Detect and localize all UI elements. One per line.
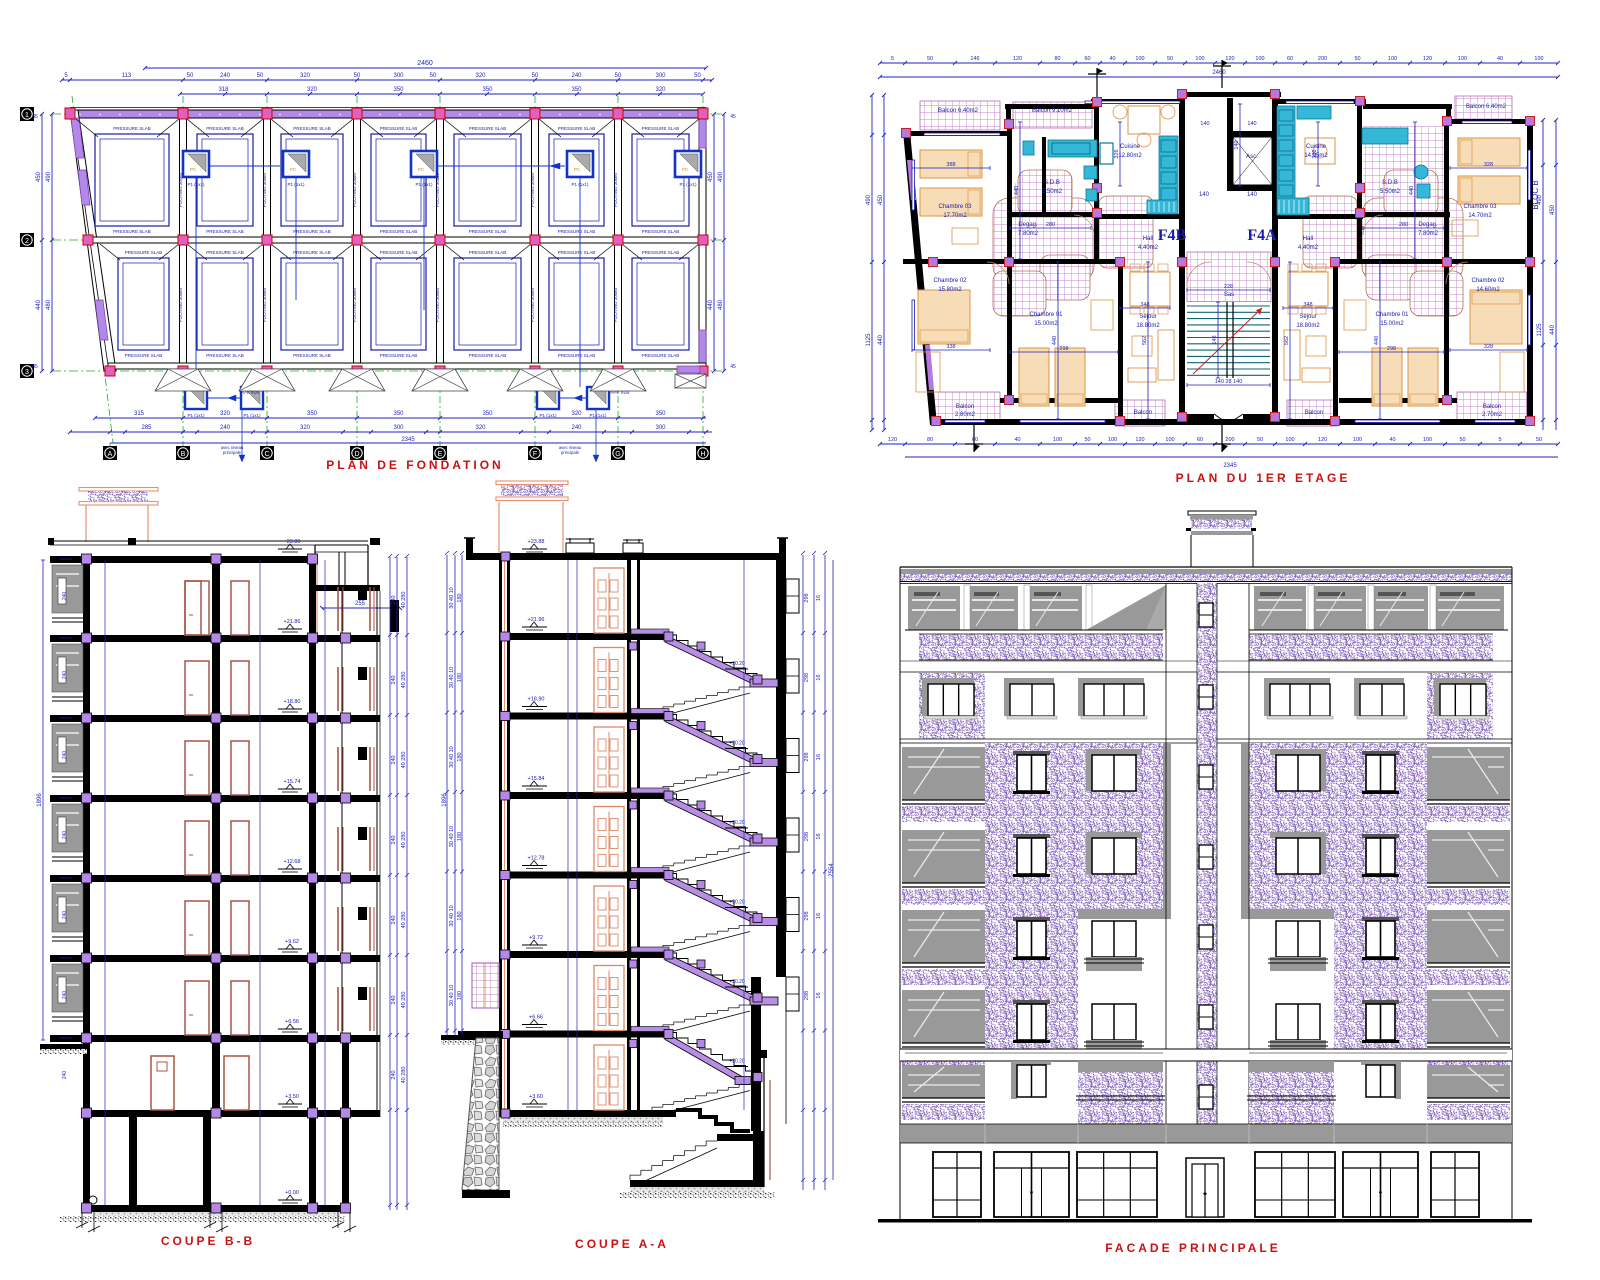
svg-text:+: + (339, 113, 342, 119)
svg-text:FACADE PRINCIPALE: FACADE PRINCIPALE (1105, 1241, 1280, 1255)
svg-text:240: 240 (62, 831, 68, 840)
svg-text:50: 50 (1354, 56, 1360, 62)
svg-text:Hall: Hall (1143, 236, 1153, 242)
svg-text:Asc.: Asc. (1246, 154, 1258, 160)
svg-text:100: 100 (1108, 437, 1117, 443)
svg-text:7.80m2: 7.80m2 (1018, 231, 1039, 237)
svg-text:450: 450 (878, 194, 884, 205)
svg-text:15.00m2: 15.00m2 (1034, 321, 1058, 327)
svg-text:440: 440 (36, 299, 42, 310)
svg-text:+: + (419, 113, 422, 119)
svg-text:440: 440 (1409, 186, 1415, 195)
svg-text:300: 300 (655, 425, 666, 431)
svg-text:338: 338 (946, 344, 955, 350)
svg-text:FOOTING 30x60: FOOTING 30x60 (613, 288, 618, 323)
svg-text:Balcon: Balcon (1305, 410, 1323, 416)
svg-text:+: + (239, 113, 242, 119)
svg-text:40 280: 40 280 (401, 912, 407, 929)
svg-text:240: 240 (391, 755, 397, 764)
svg-text:PRESSURE SLAB: PRESSURE SLAB (642, 353, 680, 358)
svg-text:16: 16 (816, 913, 822, 919)
svg-text:+: + (159, 113, 162, 119)
svg-text:140: 140 (1199, 192, 1210, 198)
svg-text:120: 120 (1135, 437, 1144, 443)
svg-text:5.50m2: 5.50m2 (1042, 189, 1063, 195)
svg-text:50: 50 (1084, 437, 1090, 443)
svg-text:50: 50 (354, 73, 361, 79)
svg-text:F4B: F4B (1158, 227, 1187, 244)
svg-text:40 280: 40 280 (401, 992, 407, 1009)
svg-text:30 40 10: 30 40 10 (449, 746, 455, 767)
svg-text:450: 450 (36, 171, 42, 182)
svg-text:+: + (279, 113, 282, 119)
svg-text:+: + (559, 113, 562, 119)
svg-text:2345: 2345 (1223, 463, 1237, 469)
svg-text:298: 298 (804, 593, 810, 602)
svg-text:COUPE A-A: COUPE A-A (575, 1237, 669, 1251)
svg-text:180: 180 (457, 673, 463, 682)
svg-text:2: 2 (25, 238, 29, 245)
svg-text:3: 3 (25, 369, 29, 376)
svg-text:300: 300 (393, 425, 404, 431)
svg-text:320: 320 (220, 411, 231, 417)
svg-text:Degag.: Degag. (1418, 222, 1438, 228)
svg-text:Cuisine: Cuisine (1120, 144, 1141, 150)
svg-text:285: 285 (141, 425, 152, 431)
svg-text:5.50m2: 5.50m2 (1380, 189, 1401, 195)
svg-text:50: 50 (1536, 437, 1542, 443)
svg-text:350: 350 (482, 411, 493, 417)
svg-text:+0.00: +0.00 (285, 1190, 299, 1196)
svg-text:50: 50 (1167, 56, 1173, 62)
svg-text:240: 240 (391, 995, 397, 1004)
svg-text:326: 326 (1312, 149, 1318, 158)
svg-text:PLAN DE FONDATION: PLAN DE FONDATION (326, 458, 503, 472)
svg-text:PLAN DU 1ER ETAGE: PLAN DU 1ER ETAGE (1176, 471, 1351, 485)
svg-text:+: + (659, 113, 662, 119)
svg-text:45: 45 (32, 364, 38, 370)
svg-text:146: 146 (970, 56, 979, 62)
svg-text:B: B (181, 451, 186, 458)
svg-text:40: 40 (1109, 56, 1115, 62)
svg-text:+: + (199, 113, 202, 119)
svg-text:50: 50 (187, 73, 194, 79)
svg-text:C: C (264, 451, 269, 458)
svg-text:240: 240 (62, 1071, 68, 1080)
svg-text:PRESSURE SLAB: PRESSURE SLAB (293, 353, 331, 358)
svg-text:180: 180 (457, 911, 463, 920)
svg-text:50: 50 (257, 73, 264, 79)
svg-text:+: + (219, 113, 222, 119)
svg-text:PRESSURE SLAB: PRESSURE SLAB (469, 126, 507, 131)
svg-text:40 280: 40 280 (401, 592, 407, 609)
svg-text:S.D.B: S.D.B (1044, 180, 1060, 186)
svg-text:140 28 140: 140 28 140 (1215, 379, 1243, 385)
svg-text:PRESSURE SLAB: PRESSURE SLAB (642, 229, 680, 234)
svg-text:▼: ▼ (1029, 1191, 1035, 1197)
svg-text:1125: 1125 (1537, 323, 1543, 337)
svg-text:Balcon 9.10m2: Balcon 9.10m2 (1032, 108, 1073, 114)
svg-text:Balcon 6.40m2: Balcon 6.40m2 (938, 108, 979, 114)
svg-text:388: 388 (946, 162, 955, 168)
svg-text:2554: 2554 (829, 863, 835, 877)
svg-text:FOOTING 30x60: FOOTING 30x60 (352, 288, 357, 323)
svg-text:+9.62: +9.62 (285, 939, 299, 945)
svg-text:240: 240 (62, 751, 68, 760)
svg-text:480: 480 (46, 299, 52, 310)
svg-text:80: 80 (1054, 56, 1060, 62)
svg-text:FOOTING 30x60: FOOTING 30x60 (262, 288, 267, 323)
svg-text:300: 300 (393, 73, 404, 79)
svg-text:◆: ◆ (1203, 1191, 1207, 1197)
svg-text:+21.96: +21.96 (528, 617, 545, 623)
svg-text:1: 1 (25, 112, 29, 119)
svg-text:PC: PC (190, 167, 197, 172)
svg-text:FOOTING 30x60: FOOTING 30x60 (530, 288, 535, 323)
svg-text:PC: PC (574, 167, 581, 172)
svg-text:+: + (499, 113, 502, 119)
svg-text:100: 100 (1135, 56, 1144, 62)
svg-text:Balcon: Balcon (956, 404, 974, 410)
svg-text:PRESSURE SLAB: PRESSURE SLAB (558, 229, 596, 234)
svg-text:450: 450 (708, 171, 714, 182)
svg-text:2460: 2460 (1212, 70, 1226, 76)
svg-text:240: 240 (391, 595, 397, 604)
svg-text:+: + (259, 113, 262, 119)
svg-text:PRESSURE SLAB: PRESSURE SLAB (125, 250, 163, 255)
svg-text:40: 40 (1014, 437, 1020, 443)
svg-text:PRESSURE SLAB: PRESSURE SLAB (206, 353, 244, 358)
svg-text:PRESSURE SLAB: PRESSURE SLAB (293, 126, 331, 131)
svg-text:120: 120 (888, 437, 897, 443)
svg-text:G: G (615, 451, 620, 458)
svg-text:4.40m2: 4.40m2 (1298, 245, 1319, 251)
svg-text:348: 348 (1303, 302, 1312, 308)
svg-text:562: 562 (1284, 336, 1290, 345)
svg-text:principale: principale (223, 450, 242, 455)
svg-text:5: 5 (891, 56, 894, 62)
svg-text:FOOTING 30x60: FOOTING 30x60 (613, 173, 618, 208)
svg-text:PC: PC (290, 167, 297, 172)
svg-text:Cuisine: Cuisine (1306, 144, 1327, 150)
svg-text:15.80m2: 15.80m2 (938, 287, 962, 293)
svg-text:+20.20: +20.20 (729, 820, 745, 826)
svg-text:148: 148 (1212, 335, 1218, 344)
svg-text:40: 40 (1497, 56, 1503, 62)
svg-text:+: + (319, 113, 322, 119)
svg-text:F: F (533, 451, 537, 458)
svg-text:100: 100 (1165, 437, 1174, 443)
svg-text:4.40m2: 4.40m2 (1138, 245, 1159, 251)
svg-text:320: 320 (571, 411, 582, 417)
svg-text:240: 240 (391, 915, 397, 924)
svg-text:5: 5 (1498, 437, 1501, 443)
svg-text:2.80m2: 2.80m2 (955, 412, 976, 418)
svg-text:+: + (679, 113, 682, 119)
svg-text:240: 240 (571, 425, 582, 431)
svg-text:30 40 10: 30 40 10 (449, 985, 455, 1006)
svg-text:+: + (399, 113, 402, 119)
svg-text:350: 350 (307, 411, 318, 417)
svg-text:100: 100 (1388, 56, 1397, 62)
svg-text:PRESSURE SLAB: PRESSURE SLAB (469, 353, 507, 358)
svg-text:2.70m2: 2.70m2 (1482, 412, 1503, 418)
svg-text:1125: 1125 (866, 333, 872, 347)
svg-text:50: 50 (1257, 437, 1263, 443)
svg-text:F4A: F4A (1247, 227, 1277, 244)
svg-text:30 40 10: 30 40 10 (449, 667, 455, 688)
svg-text:200: 200 (1225, 437, 1234, 443)
svg-text:320: 320 (300, 73, 311, 79)
svg-text:Sejour: Sejour (1299, 314, 1316, 320)
svg-text:PRESSURE SLAB: PRESSURE SLAB (113, 126, 151, 131)
svg-text:350: 350 (482, 87, 493, 93)
svg-text:120: 120 (1318, 437, 1327, 443)
svg-text:113: 113 (122, 73, 132, 79)
svg-text:+20.20: +20.20 (729, 741, 745, 747)
svg-text:PRESSURE SLAB: PRESSURE SLAB (558, 250, 596, 255)
svg-text:120: 120 (1225, 56, 1234, 62)
svg-text:PC: PC (418, 167, 425, 172)
svg-text:Balcon 6.40m2: Balcon 6.40m2 (1466, 104, 1507, 110)
svg-text:E: E (438, 451, 443, 458)
svg-text:15.00m2: 15.00m2 (1380, 321, 1404, 327)
svg-text:440: 440 (1052, 336, 1058, 345)
svg-text:140: 140 (1200, 121, 1209, 127)
svg-text:+12.78: +12.78 (528, 856, 545, 862)
svg-text:PRESSURE SLAB: PRESSURE SLAB (113, 229, 151, 234)
svg-text:+: + (519, 113, 522, 119)
svg-text:298: 298 (804, 911, 810, 920)
svg-text:100: 100 (1285, 437, 1294, 443)
svg-text:+20.20: +20.20 (729, 1059, 745, 1065)
svg-text:100: 100 (1195, 56, 1204, 62)
svg-text:50: 50 (927, 56, 933, 62)
svg-text:P1 (1x1): P1 (1x1) (679, 182, 697, 187)
svg-text:40 280: 40 280 (401, 752, 407, 769)
svg-text:320: 320 (307, 87, 318, 93)
svg-text:60: 60 (1197, 437, 1203, 443)
svg-text:45: 45 (730, 364, 736, 370)
svg-text:+23.80: +23.80 (284, 539, 301, 545)
svg-text:80: 80 (927, 437, 933, 443)
svg-text:298: 298 (804, 832, 810, 841)
svg-text:490: 490 (866, 194, 872, 205)
svg-text:PC: PC (682, 167, 689, 172)
svg-text:▼: ▼ (1378, 1191, 1384, 1197)
svg-text:60: 60 (1084, 56, 1090, 62)
svg-text:S.D.B: S.D.B (1382, 180, 1398, 186)
svg-text:45: 45 (730, 114, 736, 120)
svg-text:60: 60 (972, 437, 978, 443)
svg-text:PRESSURE SLAB: PRESSURE SLAB (293, 250, 331, 255)
svg-text:PRESSURE SLAB: PRESSURE SLAB (206, 229, 244, 234)
svg-text:50: 50 (532, 73, 539, 79)
svg-text:PRESSURE SLAB: PRESSURE SLAB (293, 229, 331, 234)
svg-text:+: + (99, 113, 102, 119)
svg-text:+20.20: +20.20 (729, 979, 745, 985)
svg-text:320: 320 (475, 425, 486, 431)
svg-text:+: + (479, 113, 482, 119)
svg-text:P1 (1x1): P1 (1x1) (589, 413, 607, 418)
svg-text:16: 16 (816, 754, 822, 760)
svg-text:480: 480 (718, 299, 724, 310)
svg-text:228: 228 (1224, 284, 1233, 290)
svg-text:PRESSURE SLAB: PRESSURE SLAB (469, 250, 507, 255)
svg-text:PRESSURE SLAB: PRESSURE SLAB (380, 353, 418, 358)
svg-text:P1 (1x1): P1 (1x1) (187, 413, 205, 418)
svg-text:40: 40 (1389, 437, 1395, 443)
svg-text:60: 60 (1287, 56, 1293, 62)
svg-text:+20.20: +20.20 (729, 900, 745, 906)
svg-text:100: 100 (1353, 437, 1362, 443)
svg-text:200: 200 (1318, 56, 1327, 62)
svg-text:FOOTING 30x60: FOOTING 30x60 (178, 288, 183, 323)
svg-text:PRESSURE SLAB: PRESSURE SLAB (380, 229, 418, 234)
svg-text:320: 320 (655, 87, 666, 93)
svg-text:+3.60: +3.60 (529, 1094, 543, 1100)
svg-text:Chambre 02: Chambre 02 (1471, 278, 1505, 284)
svg-text:16: 16 (816, 674, 822, 680)
svg-text:+18.80: +18.80 (284, 699, 301, 705)
svg-text:+21.86: +21.86 (284, 619, 301, 625)
svg-text:PRESSURE SLAB: PRESSURE SLAB (469, 229, 507, 234)
svg-text:298: 298 (804, 991, 810, 1000)
svg-text:D: D (354, 451, 359, 458)
svg-text:COUPE B-B: COUPE B-B (161, 1234, 255, 1248)
svg-text:+20.20: +20.20 (729, 661, 745, 667)
svg-text:40 280: 40 280 (401, 832, 407, 849)
svg-text:+9.72: +9.72 (529, 935, 543, 941)
svg-text:PRESSURE SLAB: PRESSURE SLAB (125, 353, 163, 358)
svg-text:FOOTING 30x60: FOOTING 30x60 (530, 173, 535, 208)
svg-text:+: + (379, 113, 382, 119)
svg-text:240: 240 (220, 73, 231, 79)
svg-text:30 40 10: 30 40 10 (449, 905, 455, 926)
svg-text:+: + (459, 113, 462, 119)
svg-text:440: 440 (1550, 324, 1556, 335)
svg-text:+18.90: +18.90 (528, 697, 545, 703)
svg-text:320: 320 (300, 425, 311, 431)
svg-text:+12.68: +12.68 (284, 859, 301, 865)
svg-text:326: 326 (1114, 149, 1120, 158)
svg-text:120: 120 (1423, 56, 1432, 62)
svg-text:PRESSURE SLAB: PRESSURE SLAB (558, 126, 596, 131)
svg-text:2460: 2460 (417, 60, 433, 67)
svg-text:45: 45 (32, 114, 38, 120)
svg-text:FOOTING 30x60: FOOTING 30x60 (435, 288, 440, 323)
svg-text:+: + (299, 113, 302, 119)
svg-text:FOOTING 30x60: FOOTING 30x60 (262, 173, 267, 208)
svg-text:+15.74: +15.74 (284, 779, 301, 785)
svg-text:50: 50 (615, 73, 622, 79)
svg-text:principale: principale (561, 450, 580, 455)
svg-text:100: 100 (1255, 56, 1264, 62)
svg-text:350: 350 (571, 87, 582, 93)
svg-text:298: 298 (804, 752, 810, 761)
svg-text:298: 298 (1059, 346, 1068, 352)
svg-text:100: 100 (1458, 56, 1467, 62)
svg-text:+: + (639, 113, 642, 119)
svg-text:280: 280 (1046, 222, 1055, 228)
svg-text:16: 16 (816, 992, 822, 998)
svg-text:Hall: Hall (1303, 236, 1313, 242)
svg-text:Chambre 02: Chambre 02 (933, 278, 967, 284)
svg-text:Balcon: Balcon (1483, 404, 1501, 410)
svg-text:240: 240 (391, 675, 397, 684)
svg-text:440: 440 (878, 334, 884, 345)
svg-text:PRESSURE SLAB: PRESSURE SLAB (206, 250, 244, 255)
svg-text:350: 350 (655, 411, 666, 417)
svg-text:240: 240 (391, 835, 397, 844)
svg-text:16: 16 (816, 595, 822, 601)
svg-text:12.80m2: 12.80m2 (1118, 153, 1142, 159)
svg-text:328: 328 (1484, 344, 1493, 350)
svg-text:+23.88: +23.88 (528, 539, 545, 545)
svg-text:240: 240 (62, 911, 68, 920)
svg-text:PRESSURE SLAB: PRESSURE SLAB (558, 353, 596, 358)
svg-text:14.70m2: 14.70m2 (1468, 213, 1492, 219)
svg-text:H: H (700, 451, 705, 458)
svg-text:50: 50 (430, 73, 437, 79)
svg-text:298: 298 (804, 673, 810, 682)
svg-text:Chambre 03: Chambre 03 (938, 204, 972, 210)
svg-text:100: 100 (1534, 56, 1543, 62)
svg-text:280: 280 (1399, 222, 1408, 228)
svg-text:140: 140 (1247, 121, 1256, 127)
svg-text:14.60m2: 14.60m2 (1476, 287, 1500, 293)
svg-text:490: 490 (46, 171, 52, 182)
svg-text:Chambre 03: Chambre 03 (1463, 204, 1497, 210)
svg-text:240: 240 (62, 991, 68, 1000)
svg-text:1896: 1896 (442, 793, 448, 807)
svg-text:300: 300 (655, 73, 666, 79)
svg-text:100: 100 (1423, 437, 1432, 443)
svg-text:240: 240 (391, 1070, 397, 1079)
svg-text:Sas: Sas (1224, 292, 1234, 298)
svg-text:240: 240 (571, 73, 582, 79)
svg-text:+15.84: +15.84 (528, 776, 545, 782)
svg-text:140: 140 (1234, 140, 1240, 149)
svg-text:120: 120 (1013, 56, 1022, 62)
svg-text:180: 180 (457, 832, 463, 841)
svg-text:180: 180 (457, 593, 463, 602)
svg-text:350: 350 (393, 411, 404, 417)
svg-text:FOOTING 30x60: FOOTING 30x60 (352, 173, 357, 208)
svg-text:440: 440 (1374, 336, 1380, 345)
svg-text:Balcon: Balcon (1134, 410, 1152, 416)
svg-text:240: 240 (220, 425, 231, 431)
svg-text:450: 450 (1550, 204, 1556, 215)
svg-text:328: 328 (1484, 162, 1493, 168)
svg-text:440: 440 (708, 299, 714, 310)
svg-text:P1 (1x1): P1 (1x1) (243, 413, 261, 418)
svg-text:+: + (139, 113, 142, 119)
svg-text:240: 240 (62, 671, 68, 680)
svg-text:PRESSURE SLAB: PRESSURE SLAB (206, 126, 244, 131)
svg-text:Chambre 01: Chambre 01 (1375, 312, 1409, 318)
svg-text:A: A (108, 451, 113, 458)
svg-text:320: 320 (475, 73, 486, 79)
svg-text:40 280: 40 280 (401, 672, 407, 689)
svg-text:1896: 1896 (37, 793, 43, 807)
svg-text:440: 440 (1014, 186, 1020, 195)
svg-text:490: 490 (718, 171, 724, 182)
svg-text:7.80m2: 7.80m2 (1418, 231, 1439, 237)
svg-text:+: + (579, 113, 582, 119)
svg-text:30 40 10: 30 40 10 (449, 587, 455, 608)
svg-text:50: 50 (1459, 437, 1465, 443)
